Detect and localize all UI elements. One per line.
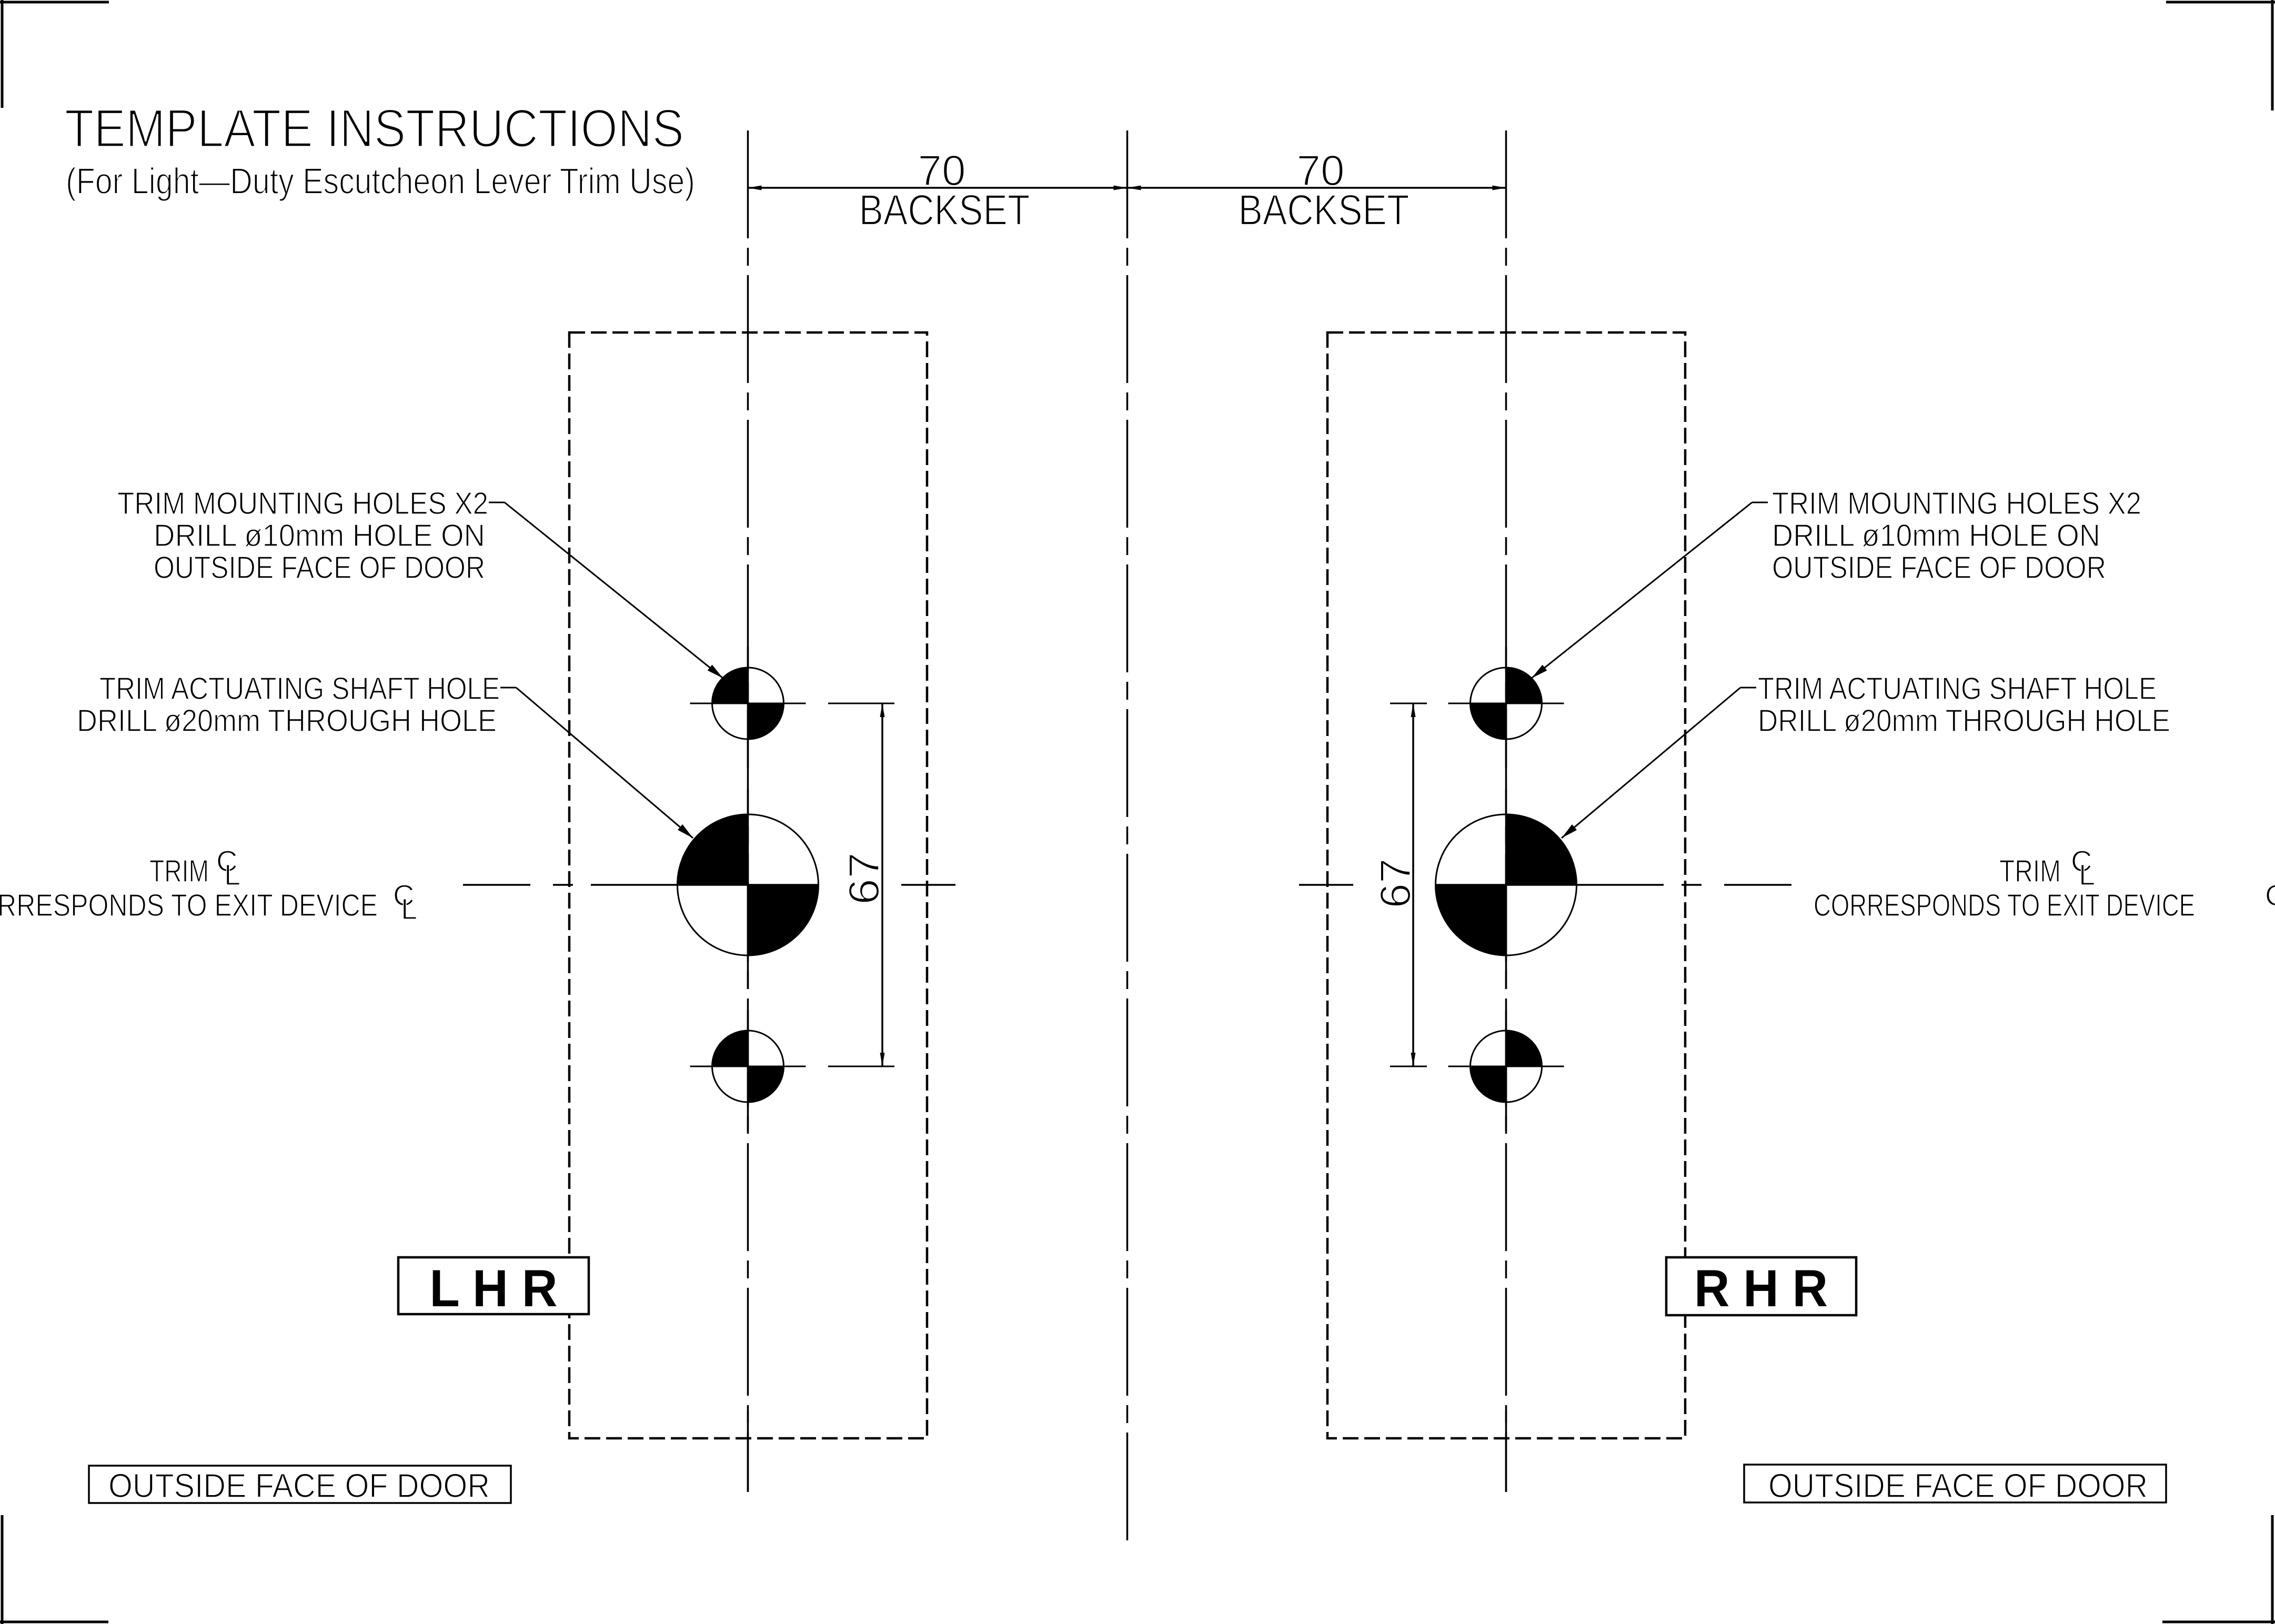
svg-text:CORRESPONDS TO EXIT DEVICE: CORRESPONDS TO EXIT DEVICE bbox=[1814, 888, 2195, 923]
svg-text:R H R: R H R bbox=[1694, 1259, 1828, 1317]
svg-text:67: 67 bbox=[1372, 859, 1420, 909]
svg-text:L: L bbox=[2079, 858, 2095, 891]
svg-text:L: L bbox=[2273, 892, 2275, 925]
svg-text:67: 67 bbox=[840, 852, 888, 905]
svg-text:TRIM: TRIM bbox=[1999, 854, 2061, 889]
svg-text:L: L bbox=[401, 892, 417, 925]
svg-text:OUTSIDE FACE OF DOOR: OUTSIDE FACE OF DOOR bbox=[1772, 550, 2106, 585]
svg-text:TRIM: TRIM bbox=[149, 854, 209, 889]
svg-text:L H R: L H R bbox=[430, 1259, 558, 1317]
svg-text:CORRESPONDS TO EXIT DEVICE: CORRESPONDS TO EXIT DEVICE bbox=[0, 888, 378, 923]
svg-text:(For Light—Duty Escutcheon Lev: (For Light—Duty Escutcheon Lever Trim Us… bbox=[66, 160, 695, 201]
svg-text:L: L bbox=[224, 858, 240, 891]
svg-text:DRILL ø10mm HOLE ON: DRILL ø10mm HOLE ON bbox=[1772, 518, 2100, 553]
svg-text:OUTSIDE FACE OF DOOR: OUTSIDE FACE OF DOOR bbox=[108, 1467, 490, 1505]
svg-text:TRIM MOUNTING HOLES X2: TRIM MOUNTING HOLES X2 bbox=[1772, 486, 2141, 521]
svg-text:TRIM ACTUATING SHAFT HOLE: TRIM ACTUATING SHAFT HOLE bbox=[99, 671, 500, 706]
svg-text:BACKSET: BACKSET bbox=[1239, 186, 1410, 234]
svg-text:TRIM ACTUATING SHAFT HOLE: TRIM ACTUATING SHAFT HOLE bbox=[1758, 671, 2157, 706]
svg-text:DRILL ø20mm THROUGH HOLE: DRILL ø20mm THROUGH HOLE bbox=[77, 703, 497, 738]
svg-text:DRILL ø20mm THROUGH HOLE: DRILL ø20mm THROUGH HOLE bbox=[1758, 703, 2170, 738]
svg-text:TRIM MOUNTING HOLES X2: TRIM MOUNTING HOLES X2 bbox=[117, 486, 488, 521]
svg-text:OUTSIDE FACE OF DOOR: OUTSIDE FACE OF DOOR bbox=[1768, 1467, 2148, 1505]
svg-text:TEMPLATE INSTRUCTIONS: TEMPLATE INSTRUCTIONS bbox=[65, 98, 684, 158]
svg-text:OUTSIDE FACE OF DOOR: OUTSIDE FACE OF DOOR bbox=[154, 550, 485, 585]
svg-text:DRILL ø10mm HOLE ON: DRILL ø10mm HOLE ON bbox=[154, 518, 485, 553]
svg-text:BACKSET: BACKSET bbox=[859, 186, 1030, 234]
